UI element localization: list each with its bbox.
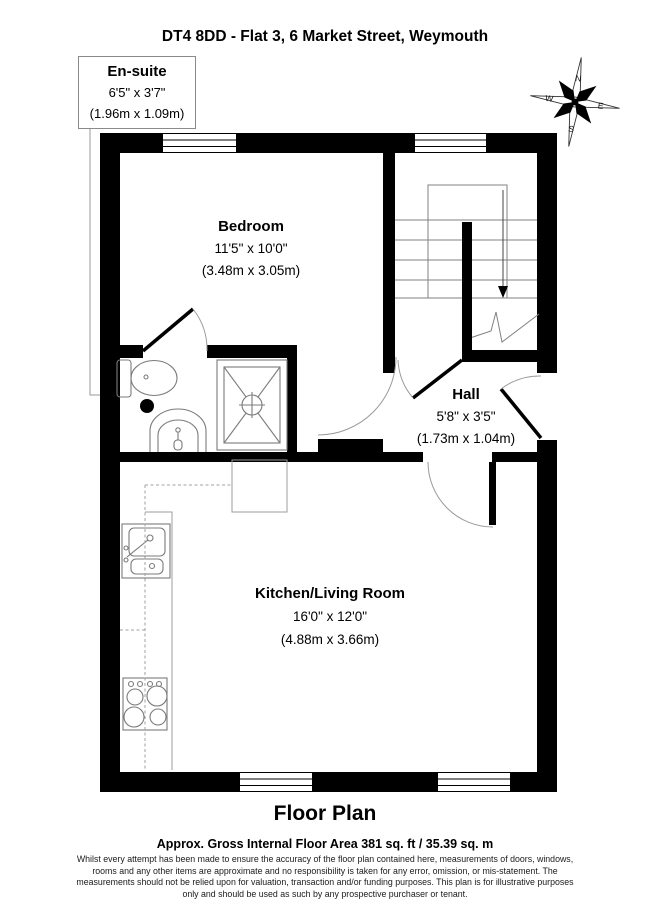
room-size-metric: (3.48m x 3.05m) bbox=[111, 260, 391, 282]
floor-plan-page: N E S W DT4 8DD - Flat 3, 6 Market Stree… bbox=[0, 0, 650, 919]
floor-plan-drawing: N E S W bbox=[0, 0, 650, 919]
door-swing-arc bbox=[428, 462, 493, 527]
room-size-imperial: 16'0" x 12'0" bbox=[180, 605, 480, 628]
toilet-icon bbox=[117, 360, 177, 397]
ensuite-door bbox=[143, 309, 207, 351]
ensuite-hall-wall bbox=[287, 358, 297, 452]
compass-label-s: S bbox=[568, 123, 575, 134]
room-size-metric: (1.96m x 1.09m) bbox=[79, 103, 195, 124]
door-leaf bbox=[489, 462, 496, 525]
room-name: Kitchen/Living Room bbox=[180, 582, 480, 605]
kitchen-living-room-label: Kitchen/Living Room 16'0" x 12'0" (4.88m… bbox=[180, 582, 480, 651]
kitchen-door bbox=[428, 462, 496, 527]
ensuite-fixtures bbox=[117, 360, 287, 452]
bedroom-ensuite-wall-stub bbox=[118, 345, 143, 358]
room-size-imperial: 6'5" x 3'7" bbox=[79, 82, 195, 103]
gross-internal-area-text: Approx. Gross Internal Floor Area 381 sq… bbox=[0, 837, 650, 851]
page-title: DT4 8DD - Flat 3, 6 Market Street, Weymo… bbox=[0, 28, 650, 46]
disclaimer-line: measurements should not be relied upon f… bbox=[0, 877, 650, 889]
hall-room-label: Hall 5'8" x 3'5" (1.73m x 1.04m) bbox=[366, 384, 566, 450]
compass-label-e: E bbox=[597, 100, 604, 111]
top-wall-middle bbox=[236, 133, 415, 153]
bottom-wall-right bbox=[510, 772, 557, 792]
compass-label-w: W bbox=[545, 93, 554, 104]
floor-drain-icon bbox=[140, 399, 154, 413]
door-swing-arc bbox=[193, 309, 207, 351]
room-name: Bedroom bbox=[111, 216, 391, 238]
floor-plan-heading: Floor Plan bbox=[0, 802, 650, 826]
disclaimer-line: only and should be used as such by any p… bbox=[0, 889, 650, 901]
bedroom-ensuite-wall bbox=[207, 345, 297, 358]
room-size-metric: (4.88m x 3.66m) bbox=[180, 628, 480, 651]
stairwell-window bbox=[415, 133, 486, 153]
disclaimer-line: rooms and any other items are approximat… bbox=[0, 866, 650, 878]
kitchen-sink-icon bbox=[122, 524, 170, 578]
bottom-wall-middle bbox=[312, 772, 438, 792]
disclaimer-text: Whilst every attempt has been made to en… bbox=[0, 854, 650, 900]
bedroom-window bbox=[163, 133, 236, 153]
stairwell-hall-wall bbox=[462, 350, 557, 362]
room-size-imperial: 5'8" x 3'5" bbox=[366, 406, 566, 428]
door-leaf bbox=[143, 309, 193, 351]
room-size-imperial: 11'5" x 10'0" bbox=[111, 238, 391, 260]
room-size-metric: (1.73m x 1.04m) bbox=[366, 428, 566, 450]
bedroom-room-label: Bedroom 11'5" x 10'0" (3.48m x 3.05m) bbox=[111, 216, 391, 282]
stair-break-line bbox=[470, 312, 539, 342]
kitchen-window-right bbox=[438, 772, 510, 792]
room-name: En-suite bbox=[79, 61, 195, 82]
ensuite-room-label: En-suite 6'5" x 3'7" (1.96m x 1.09m) bbox=[78, 56, 196, 129]
disclaimer-line: Whilst every attempt has been made to en… bbox=[0, 854, 650, 866]
shower-icon bbox=[217, 360, 287, 450]
bottom-wall-left bbox=[100, 772, 240, 792]
right-wall-lower bbox=[537, 440, 557, 792]
stair-newel-wall-overlay bbox=[462, 222, 472, 350]
room-name: Hall bbox=[366, 384, 566, 406]
right-wall-upper bbox=[537, 133, 557, 373]
hall-kitchen-wall-right bbox=[492, 452, 537, 462]
basin-icon bbox=[150, 409, 206, 452]
kitchen-window-left bbox=[240, 772, 312, 792]
ensuite-label-leader-line bbox=[90, 127, 100, 395]
